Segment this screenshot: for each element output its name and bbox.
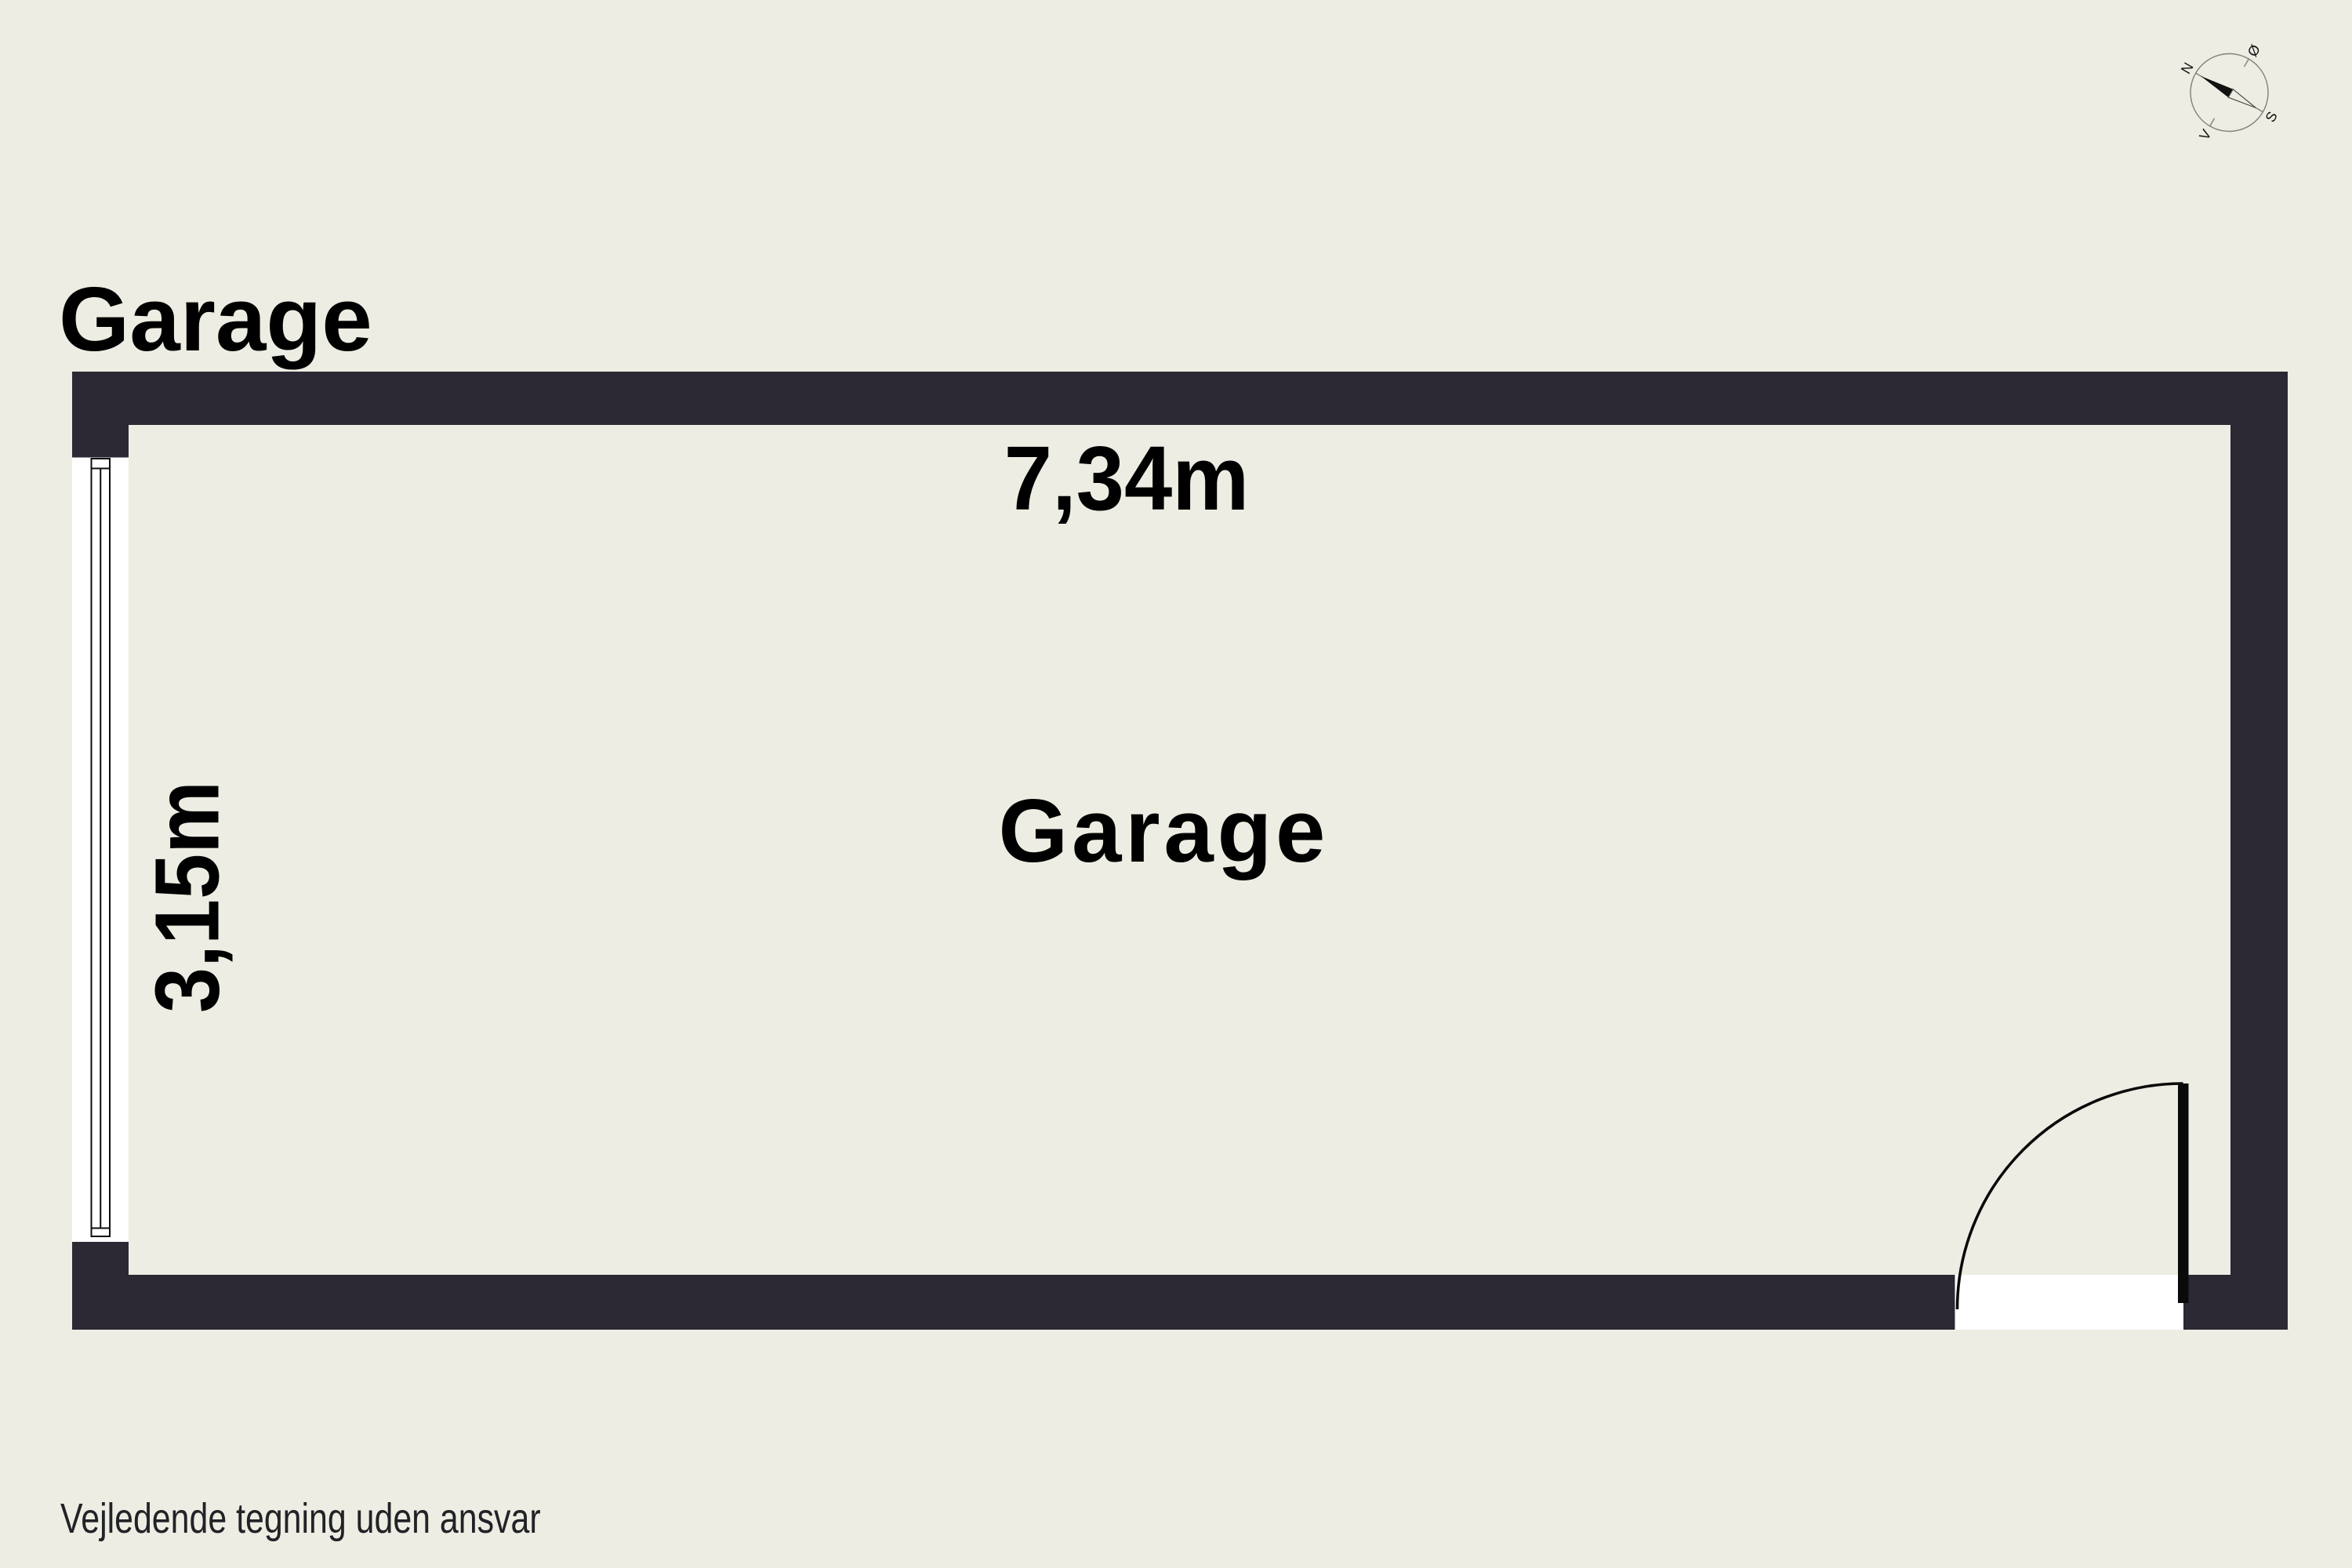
svg-text:Garage: Garage [999,782,1330,881]
svg-text:3,15m: 3,15m [136,781,238,1013]
svg-text:Garage: Garage [59,268,372,370]
svg-text:Vejledende tegning uden ansvar: Vejledende tegning uden ansvar [60,1495,541,1542]
svg-text:7,34m: 7,34m [1004,427,1249,528]
